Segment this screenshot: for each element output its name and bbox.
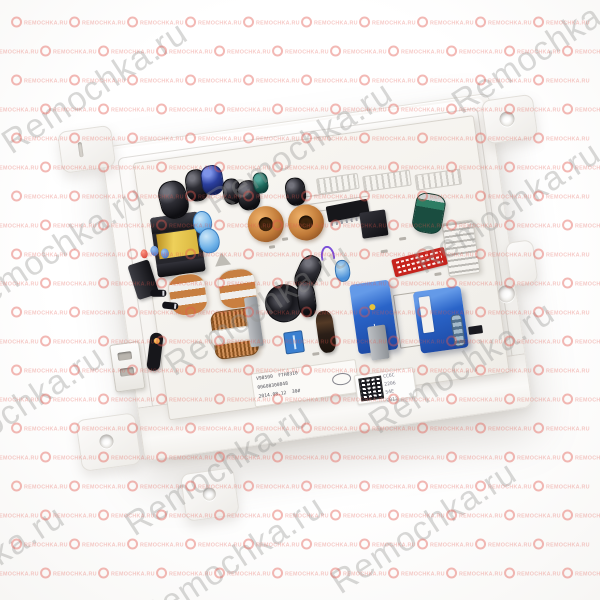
watermark-logo: REMOCHKA.RU — [359, 539, 445, 550]
pin-header-connector — [414, 169, 462, 191]
watermark-logo: REMOCHKA.RU — [40, 394, 126, 405]
watermark-logo-icon — [98, 104, 109, 115]
watermark-logo: REMOCHKA.RU — [98, 510, 184, 521]
watermark-logo: REMOCHKA.RU — [0, 104, 68, 115]
watermark-logo: REMOCHKA.RU — [11, 75, 97, 86]
watermark-logo-icon — [214, 452, 225, 463]
watermark-logo: REMOCHKA.RU — [127, 17, 213, 28]
watermark-logo-text: REMOCHKA.RU — [575, 164, 600, 170]
watermark-logo-text: REMOCHKA.RU — [0, 454, 39, 460]
watermark-logo-text: REMOCHKA.RU — [140, 19, 184, 25]
watermark-logo: REMOCHKA.RU — [243, 75, 329, 86]
watermark-logo: REMOCHKA.RU — [69, 75, 155, 86]
watermark-logo-icon — [40, 46, 51, 57]
watermark-logo-text: REMOCHKA.RU — [546, 483, 590, 489]
watermark-logo-icon — [272, 568, 283, 579]
qr-text-line: CC6C — [383, 373, 395, 379]
watermark-logo: REMOCHKA.RU — [214, 568, 300, 579]
watermark-logo: REMOCHKA.RU — [40, 46, 126, 57]
watermark-logo: REMOCHKA.RU — [301, 75, 387, 86]
watermark-logo-text: REMOCHKA.RU — [82, 309, 126, 315]
watermark-logo-text: REMOCHKA.RU — [430, 19, 474, 25]
watermark-logo: REMOCHKA.RU — [504, 162, 590, 173]
choke-coil — [166, 271, 209, 318]
watermark-logo-icon — [562, 220, 573, 231]
watermark-logo-icon — [69, 191, 80, 202]
watermark-logo-text: REMOCHKA.RU — [575, 512, 600, 518]
watermark-logo-icon — [504, 568, 515, 579]
watermark-logo-icon — [40, 394, 51, 405]
watermark-logo: REMOCHKA.RU — [475, 423, 561, 434]
multi-pin-connector — [441, 219, 480, 277]
watermark-logo-text: REMOCHKA.RU — [24, 19, 68, 25]
watermark-logo: REMOCHKA.RU — [388, 452, 474, 463]
watermark-logo-icon — [475, 75, 486, 86]
watermark-logo: REMOCHKA.RU — [446, 46, 532, 57]
watermark-logo-text: REMOCHKA.RU — [256, 483, 300, 489]
qr-text-line: 54E — [385, 389, 397, 395]
watermark-logo-icon — [98, 220, 109, 231]
watermark-logo: REMOCHKA.RU — [69, 539, 155, 550]
watermark-logo: REMOCHKA.RU — [562, 46, 600, 57]
tray-foot-hole — [99, 433, 115, 449]
watermark-logo-icon — [98, 394, 109, 405]
watermark-logo-icon — [475, 481, 486, 492]
watermark-logo: REMOCHKA.RU — [533, 191, 600, 202]
watermark-logo-text: REMOCHKA.RU — [546, 367, 590, 373]
watermark-logo: REMOCHKA.RU — [69, 17, 155, 28]
watermark-logo-icon — [446, 46, 457, 57]
watermark-logo-icon — [272, 104, 283, 115]
watermark-logo-icon — [359, 539, 370, 550]
watermark-logo: REMOCHKA.RU — [272, 452, 358, 463]
watermark-logo-icon — [446, 452, 457, 463]
watermark-logo-text: REMOCHKA.RU — [111, 48, 155, 54]
watermark-logo: REMOCHKA.RU — [533, 365, 600, 376]
watermark-logo: REMOCHKA.RU — [185, 17, 271, 28]
watermark-logo: REMOCHKA.RU — [562, 278, 600, 289]
qr-text: CC6C 2206 54E C012 — [383, 372, 407, 406]
watermark-logo-icon — [504, 46, 515, 57]
watermark-logo-text: REMOCHKA.RU — [24, 193, 68, 199]
watermark-logo-text: REMOCHKA.RU — [0, 396, 39, 402]
watermark-logo: REMOCHKA.RU — [533, 75, 600, 86]
watermark-logo: REMOCHKA.RU — [533, 423, 600, 434]
watermark-logo: REMOCHKA.RU — [185, 75, 271, 86]
watermark-logo-text: REMOCHKA.RU — [517, 570, 561, 576]
watermark-logo-icon — [243, 75, 254, 86]
watermark-logo-text: REMOCHKA.RU — [140, 483, 184, 489]
watermark-logo-icon — [272, 46, 283, 57]
power-input-connector — [109, 341, 145, 393]
watermark-logo-text: REMOCHKA.RU — [343, 454, 387, 460]
watermark-logo-icon — [69, 17, 80, 28]
watermark-logo: REMOCHKA.RU — [446, 452, 532, 463]
watermark-logo-text: REMOCHKA.RU — [285, 512, 329, 518]
watermark-logo-icon — [475, 423, 486, 434]
watermark-logo: REMOCHKA.RU — [11, 191, 97, 202]
watermark-logo-text: REMOCHKA.RU — [53, 280, 97, 286]
watermark-logo-icon — [98, 46, 109, 57]
watermark-logo-icon — [446, 568, 457, 579]
watermark-logo-text: REMOCHKA.RU — [111, 106, 155, 112]
watermark-logo-icon — [417, 75, 428, 86]
watermark-logo-text: REMOCHKA.RU — [430, 541, 474, 547]
watermark-logo: REMOCHKA.RU — [0, 162, 68, 173]
watermark-logo-icon — [417, 539, 428, 550]
fuse-marking-dot — [153, 338, 160, 345]
control-board-pcb: V98500 F7H0310 00608300848 2014.08.12 30… — [133, 115, 510, 420]
watermark-logo-text: REMOCHKA.RU — [401, 512, 445, 518]
watermark-logo-text: REMOCHKA.RU — [0, 570, 39, 576]
watermark-logo-text: REMOCHKA.RU — [546, 541, 590, 547]
watermark-logo-text: REMOCHKA.RU — [314, 77, 358, 83]
watermark-logo-text: REMOCHKA.RU — [459, 570, 503, 576]
watermark-logo-icon — [504, 162, 515, 173]
watermark-logo: REMOCHKA.RU — [301, 17, 387, 28]
trimmer-potentiometer — [283, 330, 305, 354]
watermark-logo-icon — [214, 46, 225, 57]
watermark-logo: REMOCHKA.RU — [0, 46, 68, 57]
watermark-logo: REMOCHKA.RU — [533, 307, 600, 318]
watermark-logo-icon — [562, 104, 573, 115]
watermark-logo-text: REMOCHKA.RU — [546, 135, 590, 141]
watermark-logo: REMOCHKA.RU — [156, 46, 242, 57]
pin-header-connector — [316, 173, 360, 195]
watermark-logo-text: REMOCHKA.RU — [227, 570, 271, 576]
watermark-logo-text: REMOCHKA.RU — [314, 19, 358, 25]
watermark-logo: REMOCHKA.RU — [0, 336, 68, 347]
watermark-logo-icon — [11, 481, 22, 492]
watermark-logo-text: REMOCHKA.RU — [53, 338, 97, 344]
watermark-logo-text: REMOCHKA.RU — [459, 454, 503, 460]
watermark-logo-text: REMOCHKA.RU — [575, 106, 600, 112]
watermark-logo: REMOCHKA.RU — [504, 452, 590, 463]
watermark-logo-icon — [533, 365, 544, 376]
watermark-logo-icon — [11, 307, 22, 318]
watermark-logo-text: REMOCHKA.RU — [372, 541, 416, 547]
watermark-logo: REMOCHKA.RU — [98, 104, 184, 115]
watermark-logo-text: REMOCHKA.RU — [430, 425, 474, 431]
watermark-logo: REMOCHKA.RU — [214, 46, 300, 57]
watermark-logo-text: REMOCHKA.RU — [575, 280, 600, 286]
solder-pad — [312, 352, 319, 356]
watermark-logo-icon — [388, 452, 399, 463]
watermark-logo: REMOCHKA.RU — [40, 510, 126, 521]
watermark-logo-text: REMOCHKA.RU — [517, 454, 561, 460]
watermark-logo: REMOCHKA.RU — [214, 104, 300, 115]
tray-tab-hole — [499, 111, 516, 128]
watermark-logo-icon — [40, 510, 51, 521]
watermark-logo-text: REMOCHKA.RU — [53, 512, 97, 518]
small-capacitor — [252, 172, 270, 195]
watermark-logo-text: REMOCHKA.RU — [227, 106, 271, 112]
watermark-logo-icon — [40, 452, 51, 463]
watermark-logo-text: REMOCHKA.RU — [169, 106, 213, 112]
watermark-logo-text: REMOCHKA.RU — [285, 106, 329, 112]
watermark-logo: REMOCHKA.RU — [446, 510, 532, 521]
watermark-logo-text: REMOCHKA.RU — [227, 48, 271, 54]
watermark-logo: REMOCHKA.RU — [330, 46, 416, 57]
watermark-logo-icon — [185, 75, 196, 86]
watermark-logo: REMOCHKA.RU — [156, 104, 242, 115]
watermark-logo: REMOCHKA.RU — [127, 539, 213, 550]
watermark-logo: REMOCHKA.RU — [504, 510, 590, 521]
watermark-logo: REMOCHKA.RU — [11, 249, 97, 260]
watermark-logo-icon — [504, 452, 515, 463]
watermark-logo: REMOCHKA.RU — [504, 220, 590, 231]
watermark-logo-icon — [98, 510, 109, 521]
watermark-logo: REMOCHKA.RU — [330, 510, 416, 521]
watermark-logo: REMOCHKA.RU — [272, 510, 358, 521]
watermark-logo-icon — [562, 46, 573, 57]
watermark-logo-icon — [330, 452, 341, 463]
watermark-logo-icon — [127, 481, 138, 492]
watermark-logo-text: REMOCHKA.RU — [314, 541, 358, 547]
watermark-logo-text: REMOCHKA.RU — [546, 309, 590, 315]
solder-pad — [269, 245, 275, 249]
watermark-logo-text: REMOCHKA.RU — [488, 425, 532, 431]
watermark-logo-icon — [562, 510, 573, 521]
watermark-logo: REMOCHKA.RU — [243, 539, 329, 550]
watermark-logo-icon — [243, 539, 254, 550]
watermark-logo-icon — [69, 365, 80, 376]
watermark-logo-text: REMOCHKA.RU — [82, 483, 126, 489]
watermark-logo-text: REMOCHKA.RU — [24, 425, 68, 431]
watermark-logo: REMOCHKA.RU — [359, 75, 445, 86]
watermark-logo-icon — [359, 75, 370, 86]
watermark-logo: REMOCHKA.RU — [417, 539, 503, 550]
watermark-logo-icon — [69, 249, 80, 260]
watermark-logo: REMOCHKA.RU — [533, 133, 600, 144]
watermark-logo: REMOCHKA.RU — [417, 75, 503, 86]
watermark-logo-text: REMOCHKA.RU — [140, 541, 184, 547]
watermark-logo-text: REMOCHKA.RU — [24, 367, 68, 373]
watermark-logo: REMOCHKA.RU — [417, 423, 503, 434]
watermark-logo: REMOCHKA.RU — [156, 568, 242, 579]
watermark-logo-icon — [69, 481, 80, 492]
watermark-logo-text: REMOCHKA.RU — [198, 77, 242, 83]
watermark-logo-icon — [301, 75, 312, 86]
watermark-logo: REMOCHKA.RU — [562, 510, 600, 521]
watermark-logo: REMOCHKA.RU — [0, 278, 68, 289]
watermark-logo-icon — [11, 17, 22, 28]
connector-slot — [117, 351, 132, 361]
watermark-logo-icon — [417, 423, 428, 434]
electrolytic-capacitor — [284, 176, 308, 207]
watermark-logo-icon — [330, 568, 341, 579]
watermark-logo: REMOCHKA.RU — [388, 46, 474, 57]
watermark-logo: REMOCHKA.RU — [0, 510, 68, 521]
watermark-logo-icon — [272, 452, 283, 463]
watermark-logo-icon — [533, 17, 544, 28]
watermark-logo-text: REMOCHKA.RU — [459, 512, 503, 518]
watermark-logo-text: REMOCHKA.RU — [24, 309, 68, 315]
watermark-logo-icon — [156, 104, 167, 115]
watermark-logo-icon — [40, 568, 51, 579]
watermark-logo-icon — [11, 423, 22, 434]
watermark-logo-icon — [98, 278, 109, 289]
watermark-logo-icon — [417, 17, 428, 28]
watermark-logo-text: REMOCHKA.RU — [430, 483, 474, 489]
watermark-logo-icon — [388, 46, 399, 57]
watermark-logo: REMOCHKA.RU — [446, 568, 532, 579]
watermark-logo-text: REMOCHKA.RU — [256, 19, 300, 25]
tray-slot — [78, 142, 84, 157]
solder-pad — [381, 249, 388, 253]
watermark-logo: REMOCHKA.RU — [98, 568, 184, 579]
watermark-brand-text: Remochka.ru — [0, 498, 72, 600]
watermark-logo: REMOCHKA.RU — [11, 481, 97, 492]
tray-foot-bottom — [180, 467, 240, 522]
watermark-logo-icon — [562, 336, 573, 347]
watermark-logo-text: REMOCHKA.RU — [401, 454, 445, 460]
watermark-logo-icon — [533, 307, 544, 318]
watermark-logo: REMOCHKA.RU — [40, 568, 126, 579]
watermark-logo: REMOCHKA.RU — [272, 46, 358, 57]
watermark-logo-text: REMOCHKA.RU — [546, 251, 590, 257]
watermark-logo-text: REMOCHKA.RU — [372, 483, 416, 489]
qr-code — [358, 376, 384, 402]
watermark-logo: REMOCHKA.RU — [359, 481, 445, 492]
watermark-logo: REMOCHKA.RU — [243, 17, 329, 28]
watermark-logo: REMOCHKA.RU — [243, 481, 329, 492]
watermark-logo: REMOCHKA.RU — [11, 539, 97, 550]
watermark-logo: REMOCHKA.RU — [388, 510, 474, 521]
trimmer-capacitor — [334, 259, 352, 283]
watermark-logo: REMOCHKA.RU — [504, 46, 590, 57]
watermark-logo-text: REMOCHKA.RU — [82, 19, 126, 25]
watermark-logo-icon — [156, 568, 167, 579]
watermark-logo: REMOCHKA.RU — [98, 46, 184, 57]
product-photo: V98500 F7H0310 00608300848 2014.08.12 30… — [0, 0, 600, 600]
watermark-logo-text: REMOCHKA.RU — [314, 483, 358, 489]
watermark-logo-text: REMOCHKA.RU — [285, 454, 329, 460]
watermark-logo-icon — [533, 191, 544, 202]
watermark-logo: REMOCHKA.RU — [11, 365, 97, 376]
watermark-logo-icon — [40, 278, 51, 289]
watermark-logo-icon — [301, 17, 312, 28]
watermark-logo-text: REMOCHKA.RU — [53, 48, 97, 54]
pin-header-connector — [362, 170, 412, 193]
watermark-logo: REMOCHKA.RU — [11, 17, 97, 28]
watermark-logo: REMOCHKA.RU — [533, 539, 600, 550]
watermark-logo-icon — [533, 481, 544, 492]
watermark-logo-icon — [185, 17, 196, 28]
watermark-logo-text: REMOCHKA.RU — [575, 454, 600, 460]
watermark-logo-icon — [127, 17, 138, 28]
watermark-logo-icon — [40, 336, 51, 347]
watermark-logo-icon — [69, 307, 80, 318]
watermark-logo-icon — [330, 46, 341, 57]
watermark-logo-text: REMOCHKA.RU — [575, 338, 600, 344]
tray-tab-right-mid — [505, 239, 539, 286]
watermark-logo-icon — [69, 75, 80, 86]
watermark-logo-text: REMOCHKA.RU — [343, 512, 387, 518]
watermark-logo-text: REMOCHKA.RU — [517, 48, 561, 54]
watermark-logo-icon — [185, 539, 196, 550]
smd-component — [468, 325, 483, 335]
watermark-logo-icon — [301, 481, 312, 492]
watermark-logo: REMOCHKA.RU — [359, 17, 445, 28]
connector-slot — [120, 367, 135, 377]
watermark-logo-icon — [11, 365, 22, 376]
watermark-logo: REMOCHKA.RU — [562, 220, 600, 231]
watermark-logo: REMOCHKA.RU — [562, 568, 600, 579]
watermark-logo-text: REMOCHKA.RU — [372, 77, 416, 83]
watermark-logo: REMOCHKA.RU — [301, 539, 387, 550]
watermark-logo-text: REMOCHKA.RU — [0, 338, 39, 344]
watermark-logo: REMOCHKA.RU — [562, 336, 600, 347]
watermark-logo-icon — [475, 17, 486, 28]
watermark-logo-text: REMOCHKA.RU — [430, 77, 474, 83]
watermark-logo-icon — [40, 220, 51, 231]
watermark-logo-text: REMOCHKA.RU — [575, 222, 600, 228]
watermark-logo: REMOCHKA.RU — [417, 17, 503, 28]
watermark-logo: REMOCHKA.RU — [301, 481, 387, 492]
warning-triangle-silkscreen — [213, 251, 231, 266]
watermark-logo-text: REMOCHKA.RU — [169, 48, 213, 54]
watermark-logo-icon — [562, 452, 573, 463]
watermark-logo: REMOCHKA.RU — [40, 104, 126, 115]
watermark-logo-text: REMOCHKA.RU — [256, 541, 300, 547]
watermark-logo-icon — [475, 539, 486, 550]
relay-label — [419, 296, 435, 333]
watermark-logo-text: REMOCHKA.RU — [82, 77, 126, 83]
watermark-logo-text: REMOCHKA.RU — [546, 193, 590, 199]
watermark-logo-icon — [388, 510, 399, 521]
watermark-logo-text: REMOCHKA.RU — [169, 570, 213, 576]
watermark-logo-text: REMOCHKA.RU — [0, 164, 39, 170]
watermark-logo-icon — [11, 539, 22, 550]
diode — [150, 290, 166, 297]
watermark-logo-text: REMOCHKA.RU — [488, 77, 532, 83]
tray-tab-top-left — [57, 125, 116, 174]
watermark-logo-text: REMOCHKA.RU — [517, 512, 561, 518]
watermark-logo-text: REMOCHKA.RU — [111, 512, 155, 518]
watermark-logo-text: REMOCHKA.RU — [343, 48, 387, 54]
watermark-logo-icon — [533, 423, 544, 434]
watermark-logo-text: REMOCHKA.RU — [0, 222, 39, 228]
solder-pad — [282, 237, 288, 241]
watermark-logo-text: REMOCHKA.RU — [198, 19, 242, 25]
tray-foot-left — [75, 412, 142, 472]
watermark-logo-text: REMOCHKA.RU — [82, 541, 126, 547]
watermark-logo: REMOCHKA.RU — [533, 481, 600, 492]
watermark-logo-icon — [214, 104, 225, 115]
watermark-logo-icon — [504, 510, 515, 521]
diode — [162, 301, 179, 310]
watermark-logo: REMOCHKA.RU — [417, 481, 503, 492]
watermark-logo: REMOCHKA.RU — [388, 568, 474, 579]
watermark-logo-icon — [11, 249, 22, 260]
watermark-logo: REMOCHKA.RU — [533, 249, 600, 260]
watermark-logo-text: REMOCHKA.RU — [401, 570, 445, 576]
watermark-logo: REMOCHKA.RU — [11, 307, 97, 318]
watermark-logo-text: REMOCHKA.RU — [459, 48, 503, 54]
watermark-brand-text: Remochka.ru — [324, 454, 524, 600]
led-red — [140, 249, 148, 259]
watermark-logo-icon — [214, 568, 225, 579]
watermark-logo-icon — [11, 133, 22, 144]
watermark-logo: REMOCHKA.RU — [562, 162, 600, 173]
qr-text-line: C012 — [386, 396, 398, 402]
watermark-logo: REMOCHKA.RU — [562, 394, 600, 405]
watermark-logo: REMOCHKA.RU — [475, 17, 561, 28]
watermark-logo-icon — [156, 46, 167, 57]
watermark-logo-icon — [562, 162, 573, 173]
watermark-logo-text: REMOCHKA.RU — [24, 541, 68, 547]
